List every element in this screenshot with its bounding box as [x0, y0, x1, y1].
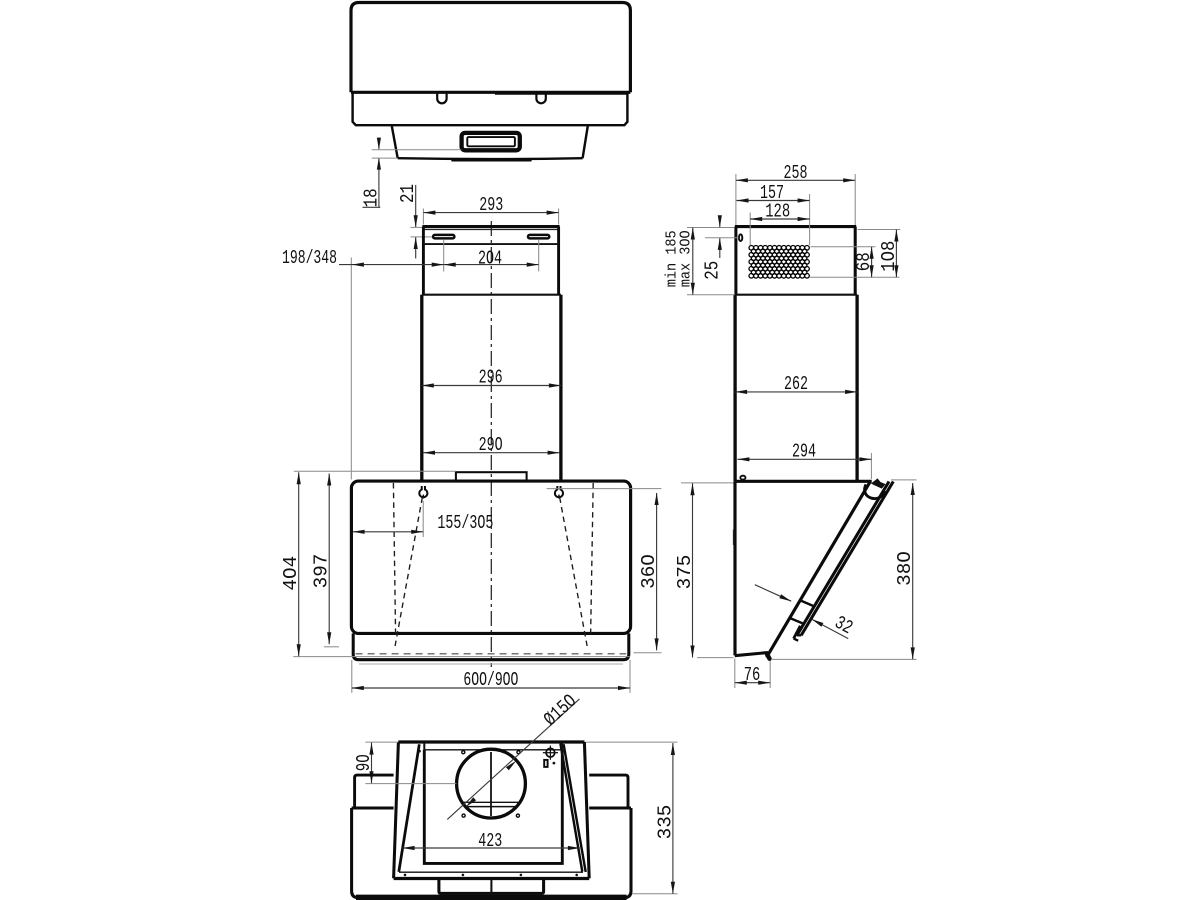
- svg-text:36O: 36O: [638, 554, 660, 589]
- svg-text:293: 293: [479, 194, 503, 216]
- svg-text:262: 262: [784, 373, 808, 395]
- svg-text:21: 21: [397, 184, 419, 203]
- svg-text:296: 296: [479, 366, 503, 388]
- svg-text:155/3O5: 155/3O5: [437, 512, 493, 534]
- svg-text:6OO/9OO: 6OO/9OO: [463, 669, 518, 691]
- svg-text:198/348: 198/348: [282, 247, 337, 269]
- svg-text:29O: 29O: [479, 434, 503, 456]
- svg-text:397: 397: [311, 554, 333, 589]
- svg-text:4O4: 4O4: [280, 556, 302, 591]
- svg-text:38O: 38O: [894, 551, 916, 586]
- svg-text:423: 423: [478, 830, 502, 852]
- svg-text:25: 25: [701, 261, 723, 280]
- svg-text:18: 18: [360, 188, 382, 207]
- svg-text:258: 258: [784, 162, 808, 184]
- svg-text:68: 68: [853, 252, 875, 271]
- svg-text:2O4: 2O4: [478, 248, 502, 270]
- svg-text:max 3OO: max 3OO: [678, 230, 695, 287]
- svg-text:9O: 9O: [353, 754, 375, 771]
- svg-text:1O8: 1O8: [878, 241, 900, 272]
- svg-text:335: 335: [654, 805, 676, 840]
- svg-text:294: 294: [792, 441, 816, 463]
- svg-text:128: 128: [765, 200, 790, 222]
- svg-text:76: 76: [744, 664, 761, 686]
- svg-text:375: 375: [674, 555, 696, 590]
